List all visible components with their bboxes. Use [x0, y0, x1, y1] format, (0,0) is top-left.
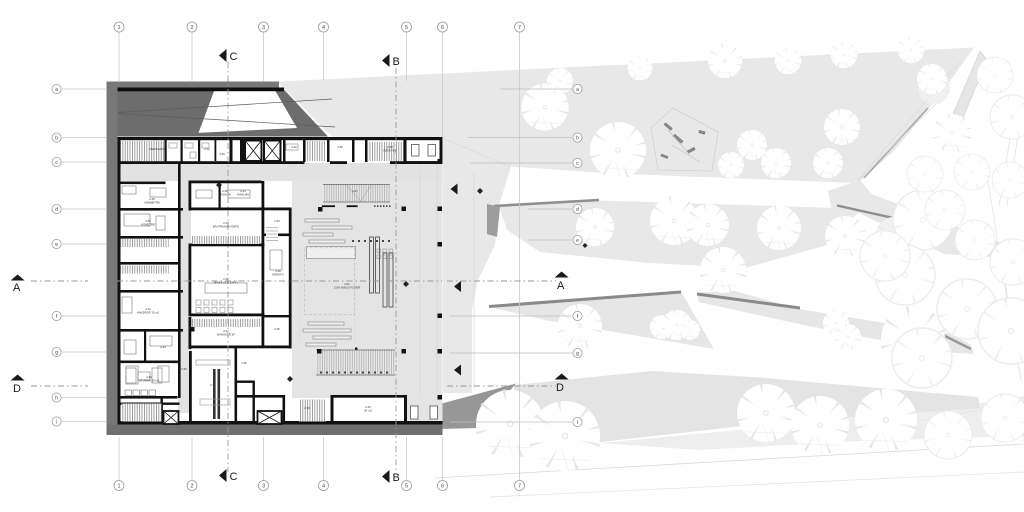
svg-text:CON INSOU FOYER: CON INSOU FOYER: [334, 285, 360, 289]
svg-text:g: g: [576, 351, 579, 357]
svg-text:6: 6: [441, 25, 444, 31]
svg-text:D: D: [13, 383, 21, 395]
svg-text:2.41: 2.41: [204, 147, 210, 151]
svg-text:B: B: [393, 472, 400, 484]
svg-text:4: 4: [322, 484, 325, 490]
svg-text:3: 3: [262, 484, 265, 490]
svg-text:1: 1: [117, 25, 120, 31]
svg-text:d: d: [576, 207, 579, 213]
svg-text:2.33: 2.33: [181, 367, 187, 371]
svg-text:2.35: 2.35: [241, 361, 247, 365]
svg-text:BASTRUMAH DEPO: BASTRUMAH DEPO: [213, 224, 240, 228]
svg-text:2.25: 2.25: [274, 327, 280, 331]
svg-text:KOMETRE: KOMETRE: [141, 222, 155, 226]
svg-text:PALINTA: PALINTA: [219, 192, 230, 196]
svg-text:a: a: [576, 87, 579, 93]
svg-text:6: 6: [441, 484, 444, 490]
svg-text:2.50: 2.50: [274, 219, 280, 223]
svg-text:A: A: [557, 280, 565, 292]
svg-text:2: 2: [190, 25, 193, 31]
svg-text:HERSTO: HERSTO: [272, 272, 284, 276]
svg-text:2.32: 2.32: [210, 383, 216, 387]
svg-text:ANEMETRA: ANEMETRA: [144, 200, 160, 204]
svg-text:2.40: 2.40: [219, 152, 225, 156]
svg-text:2.37: 2.37: [352, 189, 358, 193]
svg-text:MERDIVEN: MERDIVEN: [150, 147, 165, 151]
svg-text:i: i: [56, 420, 57, 426]
svg-text:5: 5: [405, 25, 408, 31]
svg-text:2.39: 2.39: [337, 145, 343, 149]
svg-text:A: A: [13, 282, 21, 294]
svg-text:b: b: [576, 136, 579, 142]
svg-text:e: e: [55, 242, 58, 248]
svg-text:D: D: [556, 382, 564, 394]
svg-text:7: 7: [518, 484, 521, 490]
svg-text:C: C: [230, 51, 238, 63]
svg-text:e: e: [576, 238, 579, 244]
svg-text:h: h: [55, 396, 58, 402]
svg-text:b: b: [55, 136, 58, 142]
svg-text:HANGKAR 2F: HANGKAR 2F: [217, 332, 235, 336]
svg-text:3: 3: [262, 25, 265, 31]
svg-text:C: C: [230, 471, 238, 483]
svg-text:30 m2: 30 m2: [364, 408, 372, 412]
svg-text:i: i: [577, 420, 578, 426]
svg-text:d: d: [55, 207, 58, 213]
svg-text:B: B: [393, 56, 400, 68]
svg-text:2.42: 2.42: [291, 145, 297, 149]
svg-text:OTURMA 39 m2: OTURMA 39 m2: [139, 378, 160, 382]
svg-text:5: 5: [405, 484, 408, 490]
svg-text:a: a: [55, 87, 58, 93]
svg-text:HANDROF 35 m2: HANDROF 35 m2: [137, 310, 160, 314]
svg-text:2: 2: [190, 484, 193, 490]
svg-text:7: 7: [518, 25, 521, 31]
svg-text:HAVILMA: HAVILMA: [237, 192, 249, 196]
svg-text:1: 1: [117, 484, 120, 490]
svg-text:VESTIYER: VESTIYER: [383, 148, 397, 152]
svg-text:2.43: 2.43: [160, 345, 166, 349]
svg-text:g: g: [55, 350, 58, 356]
svg-text:2.36: 2.36: [304, 406, 310, 410]
svg-text:4: 4: [322, 25, 325, 31]
